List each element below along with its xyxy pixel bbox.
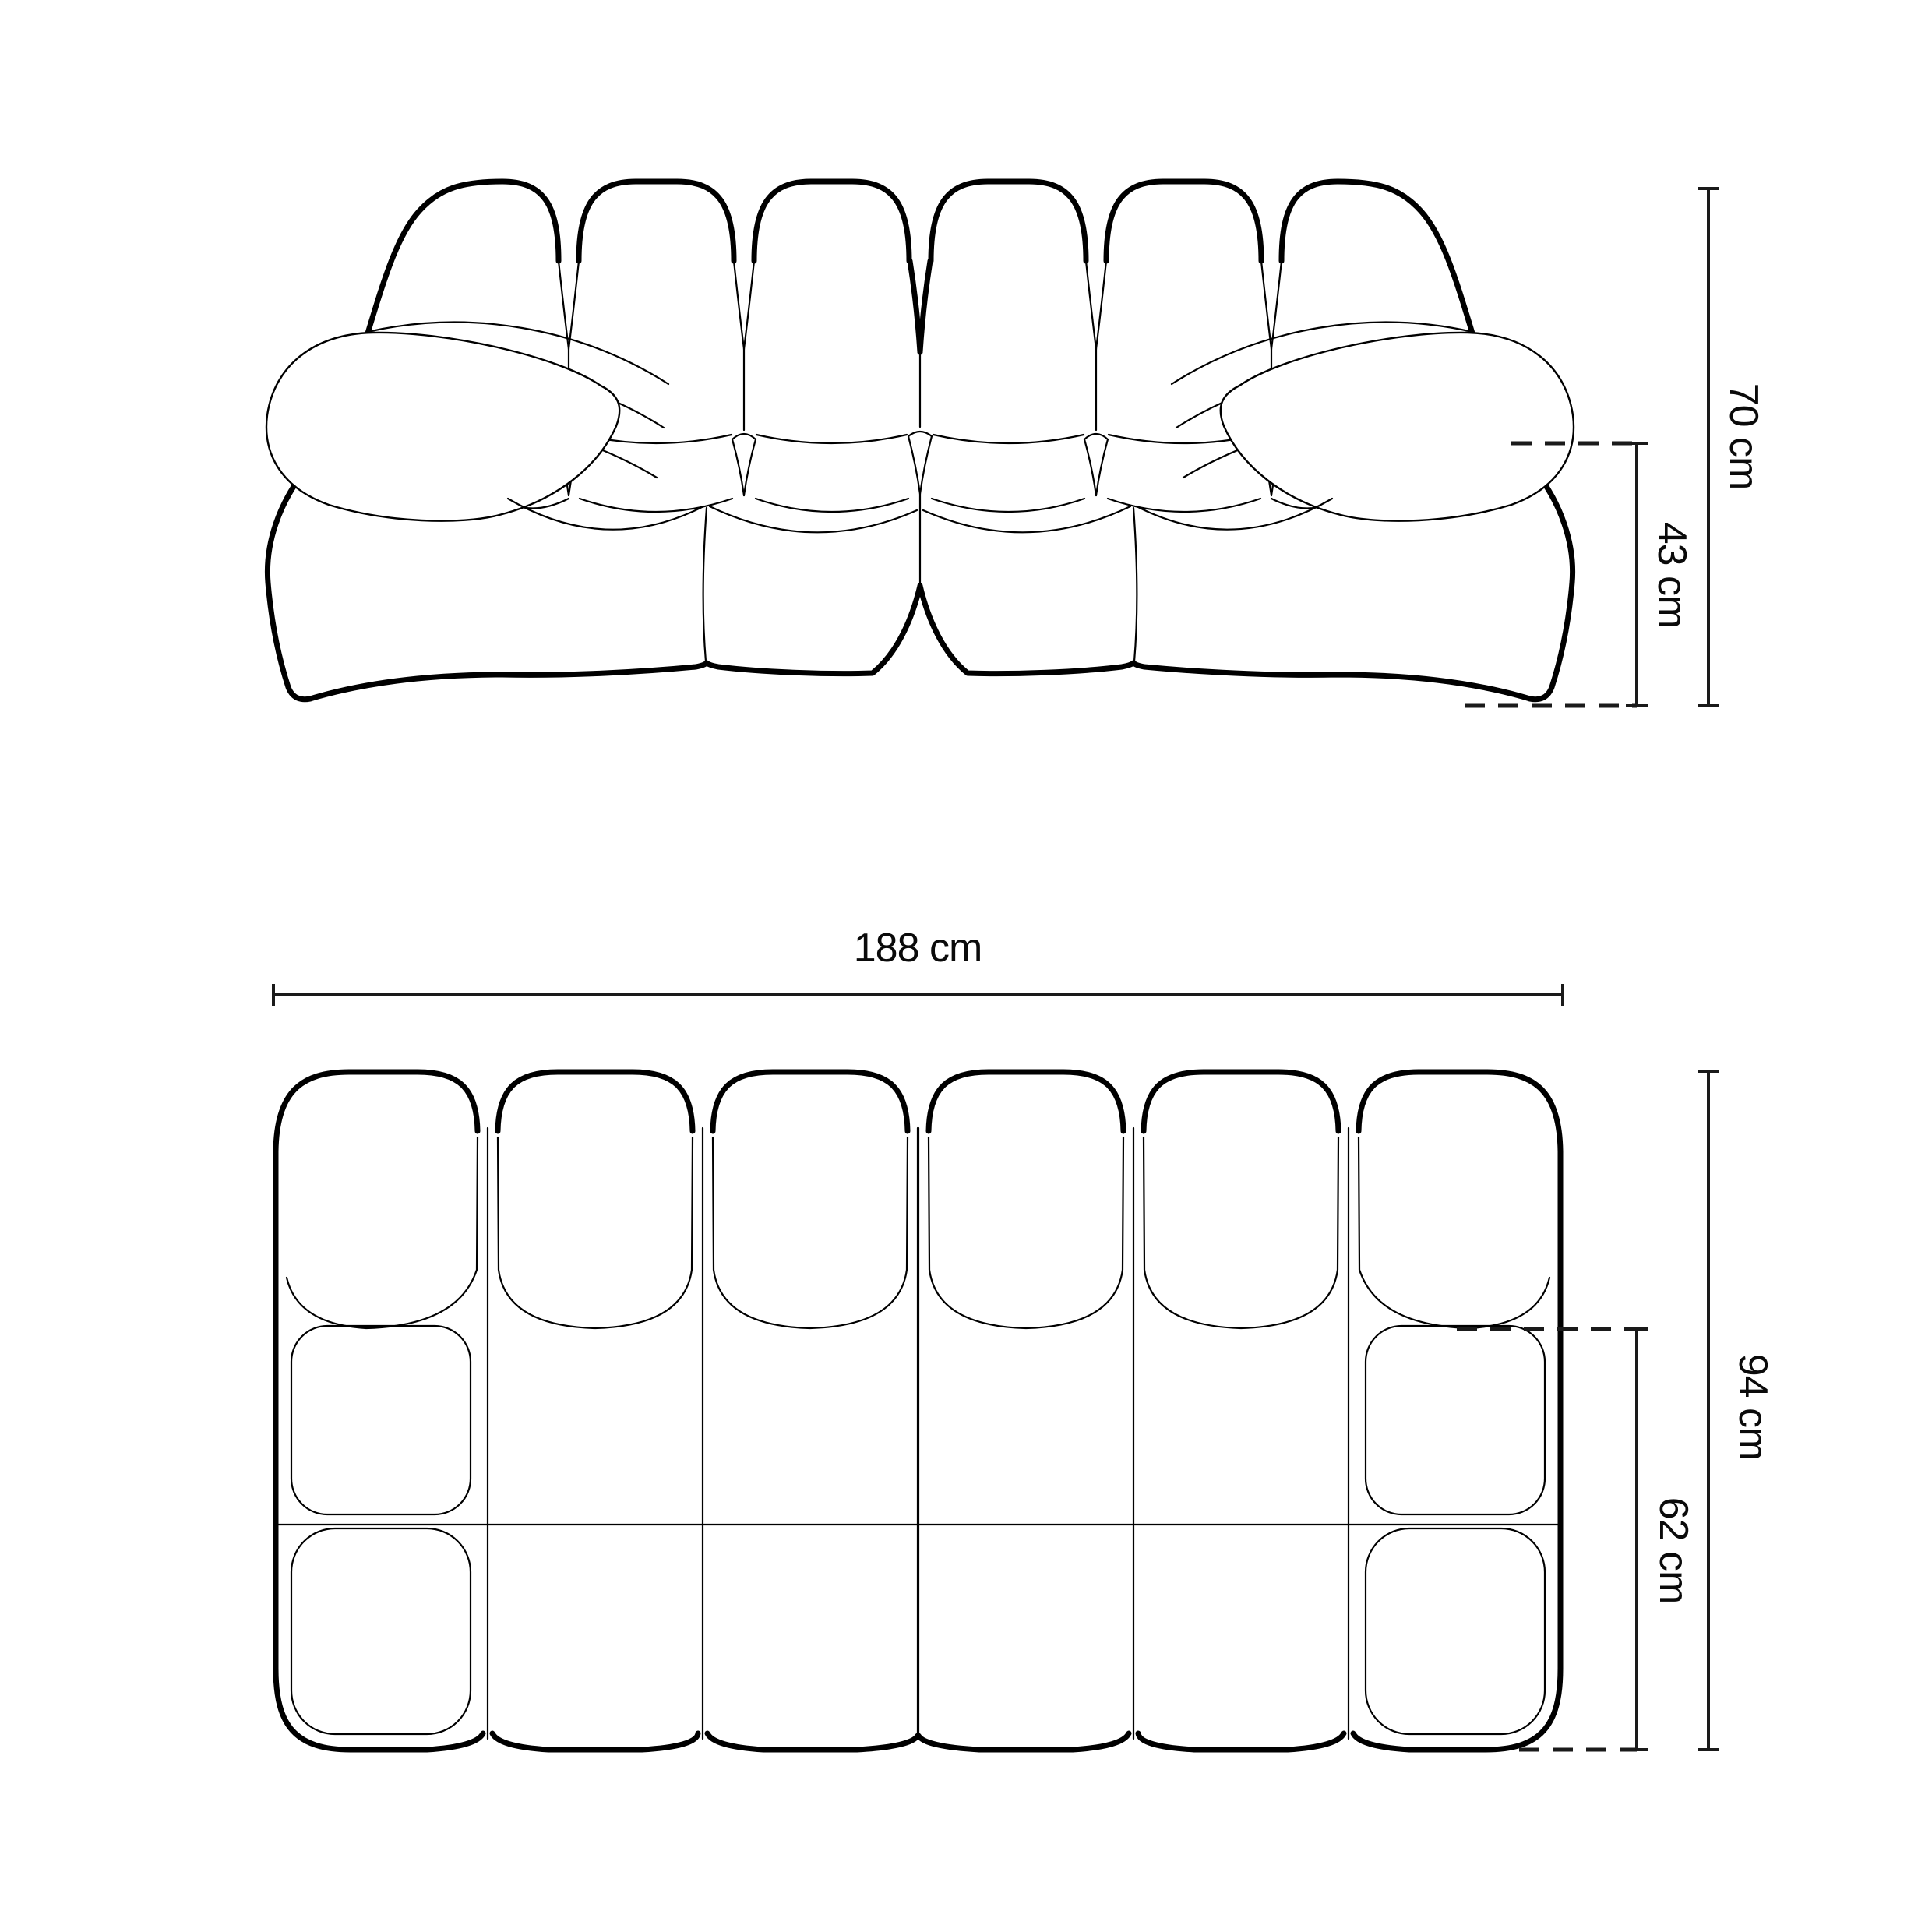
back-cushion-seam <box>732 261 756 495</box>
tuft-diamond <box>908 436 920 494</box>
tuft-diamond <box>744 439 756 495</box>
top-view <box>276 1072 1560 1750</box>
tuft-diamond <box>908 432 932 436</box>
tuft-diamond <box>920 436 932 494</box>
seat-cushion-top <box>508 499 703 530</box>
width-dimension-label: 188 cm <box>854 925 982 971</box>
lumbar-cushion-arc <box>580 499 732 512</box>
lumbar-cushion-arc <box>756 499 908 512</box>
seat-cushion-seam <box>703 508 707 661</box>
top-view-dimensions: 188 cm 94 cm 62 cm <box>273 925 1775 1750</box>
back-cushion-bottom <box>756 435 907 443</box>
armrest-front <box>266 333 619 521</box>
height-dimension-label: 70 cm <box>1721 383 1766 490</box>
top-view-left-half <box>276 1072 918 1750</box>
centre-seam-bold <box>920 261 930 352</box>
front-view-right-half <box>920 182 1574 700</box>
top-view-right-half <box>918 1072 1560 1750</box>
depth-dimension-label: 94 cm <box>1730 1354 1775 1461</box>
back-cushion-top <box>579 182 734 261</box>
back-cushion-top <box>754 182 909 261</box>
front-view-left-half <box>266 182 920 700</box>
sofa-dimension-drawing: 70 cm 43 cm 188 cm 94 cm <box>0 0 1932 1932</box>
seam-curve <box>569 261 579 349</box>
seam-curve <box>734 261 744 349</box>
seat-depth-dimension-label: 62 cm <box>1651 1497 1696 1604</box>
seat-height-dimension-label: 43 cm <box>1649 522 1694 629</box>
front-view <box>266 182 1574 700</box>
front-centre-seam <box>908 261 932 586</box>
seam-curve <box>744 261 754 349</box>
tuft-diamond <box>732 434 756 439</box>
sofa-bottom-edge <box>310 586 920 699</box>
tuft-diamond <box>732 439 744 495</box>
dimension-sheet: 70 cm 43 cm 188 cm 94 cm <box>0 0 1932 1932</box>
